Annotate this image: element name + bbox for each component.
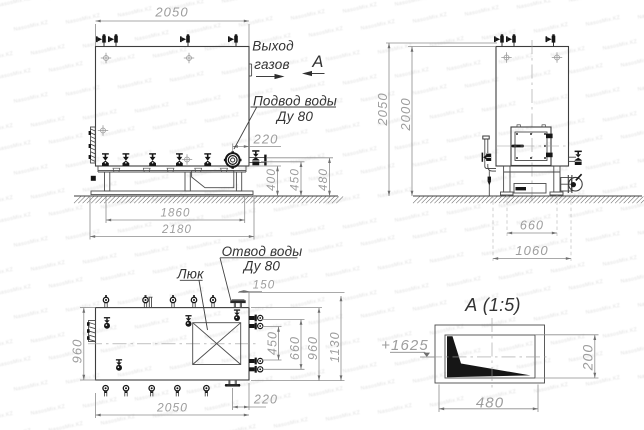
svg-text:NasosMix.KZ: NasosMix.KZ <box>204 400 240 413</box>
svg-text:NasosMix.KZ: NasosMix.KZ <box>204 112 240 125</box>
svg-text:NasosMix.KZ: NasosMix.KZ <box>516 286 552 299</box>
svg-text:NasosMix.KZ: NasosMix.KZ <box>325 410 361 423</box>
svg-text:А: А <box>311 53 323 71</box>
svg-text:NasosMix.KZ: NasosMix.KZ <box>325 50 361 63</box>
svg-text:NasosMix.KZ: NasosMix.KZ <box>82 109 118 122</box>
svg-text:1860: 1860 <box>161 208 191 220</box>
svg-text:NasosMix.KZ: NasosMix.KZ <box>342 218 378 231</box>
svg-text:450: 450 <box>266 331 280 355</box>
svg-text:NasosMix.KZ: NasosMix.KZ <box>117 150 153 163</box>
svg-text:NasosMix.KZ: NasosMix.KZ <box>134 246 170 259</box>
svg-text:NasosMix.KZ: NasosMix.KZ <box>342 2 378 15</box>
svg-text:NasosMix.KZ: NasosMix.KZ <box>152 47 188 60</box>
svg-text:NasosMix.KZ: NasosMix.KZ <box>0 267 14 280</box>
svg-text:450: 450 <box>287 168 301 191</box>
svg-text:NasosMix.KZ: NasosMix.KZ <box>637 152 644 165</box>
svg-text:NasosMix.KZ: NasosMix.KZ <box>585 303 621 316</box>
svg-text:NasosMix.KZ: NasosMix.KZ <box>568 207 604 220</box>
svg-text:NasosMix.KZ: NasosMix.KZ <box>13 92 49 105</box>
svg-text:газов: газов <box>254 57 289 72</box>
svg-text:NasosMix.KZ: NasosMix.KZ <box>308 314 344 327</box>
svg-text:NasosMix.KZ: NasosMix.KZ <box>273 129 309 142</box>
svg-text:NasosMix.KZ: NasosMix.KZ <box>117 6 153 19</box>
svg-text:Выход: Выход <box>252 39 294 54</box>
svg-text:NasosMix.KZ: NasosMix.KZ <box>360 379 396 392</box>
svg-text:NasosMix.KZ: NasosMix.KZ <box>238 16 274 29</box>
svg-text:NasosMix.KZ: NasosMix.KZ <box>602 111 638 124</box>
svg-text:NasosMix.KZ: NasosMix.KZ <box>464 5 500 18</box>
svg-text:NasosMix.KZ: NasosMix.KZ <box>377 43 413 56</box>
svg-text:NasosMix.KZ: NasosMix.KZ <box>637 80 644 93</box>
svg-text:NasosMix.KZ: NasosMix.KZ <box>429 36 465 49</box>
svg-text:NasosMix.KZ: NasosMix.KZ <box>360 235 396 248</box>
svg-text:NasosMix.KZ: NasosMix.KZ <box>412 156 448 169</box>
svg-text:NasosMix.KZ: NasosMix.KZ <box>464 221 500 234</box>
svg-text:NasosMix.KZ: NasosMix.KZ <box>186 23 222 36</box>
svg-text:NasosMix.KZ: NasosMix.KZ <box>481 101 517 114</box>
svg-text:NasosMix.KZ: NasosMix.KZ <box>152 119 188 132</box>
svg-text:NasosMix.KZ: NasosMix.KZ <box>48 133 84 146</box>
svg-text:NasosMix.KZ: NasosMix.KZ <box>568 0 604 4</box>
svg-text:NasosMix.KZ: NasosMix.KZ <box>0 123 14 136</box>
svg-text:NasosMix.KZ: NasosMix.KZ <box>429 252 465 265</box>
svg-text:NasosMix.KZ: NasosMix.KZ <box>65 229 101 242</box>
svg-text:NasosMix.KZ: NasosMix.KZ <box>0 356 32 369</box>
svg-text:220: 220 <box>253 132 279 147</box>
svg-text:NasosMix.KZ: NasosMix.KZ <box>48 0 84 2</box>
svg-text:NasosMix.KZ: NasosMix.KZ <box>100 126 136 139</box>
svg-text:960: 960 <box>306 336 320 360</box>
svg-text:NasosMix.KZ: NasosMix.KZ <box>394 0 430 8</box>
svg-text:480: 480 <box>476 395 504 412</box>
svg-text:NasosMix.KZ: NasosMix.KZ <box>117 78 153 91</box>
svg-text:NasosMix.KZ: NasosMix.KZ <box>446 204 482 217</box>
svg-text:NasosMix.KZ: NasosMix.KZ <box>585 375 621 388</box>
svg-text:NasosMix.KZ: NasosMix.KZ <box>533 94 569 107</box>
svg-text:NasosMix.KZ: NasosMix.KZ <box>134 174 170 187</box>
svg-text:NasosMix.KZ: NasosMix.KZ <box>377 403 413 416</box>
svg-text:NasosMix.KZ: NasosMix.KZ <box>446 0 482 1</box>
svg-text:NasosMix.KZ: NasosMix.KZ <box>186 95 222 108</box>
svg-text:NasosMix.KZ: NasosMix.KZ <box>82 181 118 194</box>
svg-text:NasosMix.KZ: NasosMix.KZ <box>412 228 448 241</box>
svg-text:+1625: +1625 <box>381 337 429 354</box>
svg-text:NasosMix.KZ: NasosMix.KZ <box>394 283 430 296</box>
svg-text:NasosMix.KZ: NasosMix.KZ <box>221 136 257 149</box>
svg-text:NasosMix.KZ: NasosMix.KZ <box>533 382 569 395</box>
svg-text:NasosMix.KZ: NasosMix.KZ <box>273 417 309 430</box>
svg-text:NasosMix.KZ: NasosMix.KZ <box>221 208 257 221</box>
svg-text:NasosMix.KZ: NasosMix.KZ <box>0 68 32 81</box>
svg-text:NasosMix.KZ: NasosMix.KZ <box>342 290 378 303</box>
svg-text:NasosMix.KZ: NasosMix.KZ <box>585 87 621 100</box>
svg-text:NasosMix.KZ: NasosMix.KZ <box>585 231 621 244</box>
svg-text:NasosMix.KZ: NasosMix.KZ <box>13 20 49 33</box>
svg-text:NasosMix.KZ: NasosMix.KZ <box>620 344 644 357</box>
svg-text:NasosMix.KZ: NasosMix.KZ <box>342 74 378 87</box>
svg-text:NasosMix.KZ: NasosMix.KZ <box>169 71 205 84</box>
svg-text:Отвод воды: Отвод воды <box>222 244 303 259</box>
svg-text:NasosMix.KZ: NasosMix.KZ <box>377 259 413 272</box>
svg-text:NasosMix.KZ: NasosMix.KZ <box>550 262 586 275</box>
svg-text:NasosMix.KZ: NasosMix.KZ <box>238 376 274 389</box>
svg-text:NasosMix.KZ: NasosMix.KZ <box>273 201 309 214</box>
svg-text:200: 200 <box>580 344 596 372</box>
svg-text:NasosMix.KZ: NasosMix.KZ <box>325 266 361 279</box>
svg-text:NasosMix.KZ: NasosMix.KZ <box>394 211 430 224</box>
svg-text:660: 660 <box>288 336 302 360</box>
svg-text:NasosMix.KZ: NasosMix.KZ <box>100 414 136 427</box>
svg-text:NasosMix.KZ: NasosMix.KZ <box>48 205 84 218</box>
svg-text:NasosMix.KZ: NasosMix.KZ <box>117 366 153 379</box>
svg-text:NasosMix.KZ: NasosMix.KZ <box>0 411 14 424</box>
svg-text:NasosMix.KZ: NasosMix.KZ <box>186 239 222 252</box>
svg-text:NasosMix.KZ: NasosMix.KZ <box>637 8 644 21</box>
svg-text:220: 220 <box>253 393 278 407</box>
svg-text:NasosMix.KZ: NasosMix.KZ <box>429 180 465 193</box>
svg-text:NasosMix.KZ: NasosMix.KZ <box>446 60 482 73</box>
svg-text:NasosMix.KZ: NasosMix.KZ <box>481 173 517 186</box>
svg-text:NasosMix.KZ: NasosMix.KZ <box>273 273 309 286</box>
svg-text:NasosMix.KZ: NasosMix.KZ <box>308 242 344 255</box>
svg-text:NasosMix.KZ: NasosMix.KZ <box>533 310 569 323</box>
svg-text:Ду 80: Ду 80 <box>242 259 280 274</box>
svg-text:NasosMix.KZ: NasosMix.KZ <box>342 362 378 375</box>
svg-text:NasosMix.KZ: NasosMix.KZ <box>152 335 188 348</box>
svg-text:NasosMix.KZ: NasosMix.KZ <box>0 140 32 153</box>
svg-text:NasosMix.KZ: NasosMix.KZ <box>134 102 170 115</box>
svg-text:NasosMix.KZ: NasosMix.KZ <box>221 0 257 5</box>
svg-text:NasosMix.KZ: NasosMix.KZ <box>620 128 644 141</box>
svg-text:NasosMix.KZ: NasosMix.KZ <box>30 116 66 129</box>
svg-text:NasosMix.KZ: NasosMix.KZ <box>637 224 644 237</box>
svg-text:NasosMix.KZ: NasosMix.KZ <box>290 9 326 22</box>
svg-text:NasosMix.KZ: NasosMix.KZ <box>568 135 604 148</box>
svg-text:400: 400 <box>264 168 278 191</box>
svg-text:Подвод воды: Подвод воды <box>253 94 337 109</box>
svg-text:1130: 1130 <box>328 331 342 362</box>
svg-text:NasosMix.KZ: NasosMix.KZ <box>169 359 205 372</box>
svg-text:NasosMix.KZ: NasosMix.KZ <box>100 270 136 283</box>
svg-text:NasosMix.KZ: NasosMix.KZ <box>585 159 621 172</box>
svg-text:Люк: Люк <box>176 267 204 282</box>
svg-text:NasosMix.KZ: NasosMix.KZ <box>568 63 604 76</box>
svg-text:NasosMix.KZ: NasosMix.KZ <box>238 232 274 245</box>
svg-text:NasosMix.KZ: NasosMix.KZ <box>82 253 118 266</box>
svg-text:NasosMix.KZ: NasosMix.KZ <box>568 279 604 292</box>
svg-text:NasosMix.KZ: NasosMix.KZ <box>360 163 396 176</box>
svg-text:Ду 80: Ду 80 <box>275 109 313 124</box>
svg-text:NasosMix.KZ: NasosMix.KZ <box>602 255 638 268</box>
svg-text:NasosMix.KZ: NasosMix.KZ <box>498 341 534 354</box>
svg-text:NasosMix.KZ: NasosMix.KZ <box>290 153 326 166</box>
svg-text:NasosMix.KZ: NasosMix.KZ <box>82 397 118 410</box>
svg-text:NasosMix.KZ: NasosMix.KZ <box>481 245 517 258</box>
svg-text:NasosMix.KZ: NasosMix.KZ <box>446 276 482 289</box>
svg-text:NasosMix.KZ: NasosMix.KZ <box>412 84 448 97</box>
svg-text:NasosMix.KZ: NasosMix.KZ <box>464 77 500 90</box>
svg-text:2050: 2050 <box>375 92 390 126</box>
svg-text:NasosMix.KZ: NasosMix.KZ <box>0 195 14 208</box>
svg-text:А (1:5): А (1:5) <box>464 295 520 315</box>
svg-text:NasosMix.KZ: NasosMix.KZ <box>0 212 32 225</box>
svg-text:NasosMix.KZ: NasosMix.KZ <box>0 51 14 64</box>
svg-text:NasosMix.KZ: NasosMix.KZ <box>516 70 552 83</box>
svg-text:NasosMix.KZ: NasosMix.KZ <box>30 44 66 57</box>
svg-text:NasosMix.KZ: NasosMix.KZ <box>308 386 344 399</box>
svg-text:NasosMix.KZ: NasosMix.KZ <box>516 358 552 371</box>
svg-text:NasosMix.KZ: NasosMix.KZ <box>516 0 552 11</box>
svg-text:NasosMix.KZ: NasosMix.KZ <box>325 122 361 135</box>
svg-text:NasosMix.KZ: NasosMix.KZ <box>498 53 534 66</box>
svg-text:NasosMix.KZ: NasosMix.KZ <box>585 15 621 28</box>
svg-text:NasosMix.KZ: NasosMix.KZ <box>48 421 84 430</box>
svg-text:NasosMix.KZ: NasosMix.KZ <box>637 368 644 381</box>
svg-text:NasosMix.KZ: NasosMix.KZ <box>446 132 482 145</box>
svg-text:2180: 2180 <box>161 224 192 236</box>
svg-text:960: 960 <box>70 339 85 364</box>
svg-text:NasosMix.KZ: NasosMix.KZ <box>0 339 14 352</box>
svg-text:NasosMix.KZ: NasosMix.KZ <box>0 284 32 297</box>
svg-text:NasosMix.KZ: NasosMix.KZ <box>620 272 644 285</box>
svg-text:NasosMix.KZ: NasosMix.KZ <box>290 81 326 94</box>
svg-text:150: 150 <box>253 280 276 292</box>
svg-text:NasosMix.KZ: NasosMix.KZ <box>620 56 644 69</box>
svg-text:NasosMix.KZ: NasosMix.KZ <box>620 200 644 213</box>
svg-text:NasosMix.KZ: NasosMix.KZ <box>30 332 66 345</box>
svg-text:NasosMix.KZ: NasosMix.KZ <box>481 29 517 42</box>
svg-text:NasosMix.KZ: NasosMix.KZ <box>13 380 49 393</box>
svg-text:NasosMix.KZ: NasosMix.KZ <box>637 296 644 309</box>
svg-text:NasosMix.KZ: NasosMix.KZ <box>429 108 465 121</box>
svg-text:NasosMix.KZ: NasosMix.KZ <box>360 307 396 320</box>
svg-text:NasosMix.KZ: NasosMix.KZ <box>290 369 326 382</box>
svg-text:NasosMix.KZ: NasosMix.KZ <box>481 317 517 330</box>
svg-text:NasosMix.KZ: NasosMix.KZ <box>48 61 84 74</box>
svg-text:NasosMix.KZ: NasosMix.KZ <box>221 424 257 430</box>
svg-text:660: 660 <box>520 219 544 233</box>
svg-text:NasosMix.KZ: NasosMix.KZ <box>360 19 396 32</box>
svg-text:NasosMix.KZ: NasosMix.KZ <box>602 327 638 340</box>
svg-text:2050: 2050 <box>156 401 188 415</box>
svg-text:NasosMix.KZ: NasosMix.KZ <box>13 308 49 321</box>
svg-text:NasosMix.KZ: NasosMix.KZ <box>13 164 49 177</box>
svg-text:NasosMix.KZ: NasosMix.KZ <box>498 269 534 282</box>
svg-text:NasosMix.KZ: NasosMix.KZ <box>30 188 66 201</box>
svg-text:NasosMix.KZ: NasosMix.KZ <box>290 225 326 238</box>
svg-text:NasosMix.KZ: NasosMix.KZ <box>429 396 465 409</box>
svg-text:2050: 2050 <box>154 5 188 20</box>
svg-text:NasosMix.KZ: NasosMix.KZ <box>412 300 448 313</box>
svg-text:NasosMix.KZ: NasosMix.KZ <box>342 146 378 159</box>
svg-text:NasosMix.KZ: NasosMix.KZ <box>117 222 153 235</box>
svg-text:NasosMix.KZ: NasosMix.KZ <box>13 236 49 249</box>
svg-text:NasosMix.KZ: NasosMix.KZ <box>134 30 170 43</box>
svg-text:NasosMix.KZ: NasosMix.KZ <box>377 187 413 200</box>
svg-text:NasosMix.KZ: NasosMix.KZ <box>65 13 101 26</box>
svg-text:NasosMix.KZ: NasosMix.KZ <box>0 0 32 9</box>
svg-text:NasosMix.KZ: NasosMix.KZ <box>30 404 66 417</box>
svg-text:NasosMix.KZ: NasosMix.KZ <box>533 22 569 35</box>
svg-text:NasosMix.KZ: NasosMix.KZ <box>48 277 84 290</box>
svg-text:NasosMix.KZ: NasosMix.KZ <box>30 260 66 273</box>
svg-text:NasosMix.KZ: NasosMix.KZ <box>412 12 448 25</box>
svg-text:NasosMix.KZ: NasosMix.KZ <box>602 183 638 196</box>
svg-text:2000: 2000 <box>398 97 413 131</box>
svg-text:1060: 1060 <box>515 243 548 258</box>
svg-text:NasosMix.KZ: NasosMix.KZ <box>602 39 638 52</box>
svg-text:NasosMix.KZ: NasosMix.KZ <box>308 26 344 39</box>
svg-text:NasosMix.KZ: NasosMix.KZ <box>169 143 205 156</box>
svg-text:480: 480 <box>316 168 330 191</box>
svg-text:NasosMix.KZ: NasosMix.KZ <box>134 318 170 331</box>
